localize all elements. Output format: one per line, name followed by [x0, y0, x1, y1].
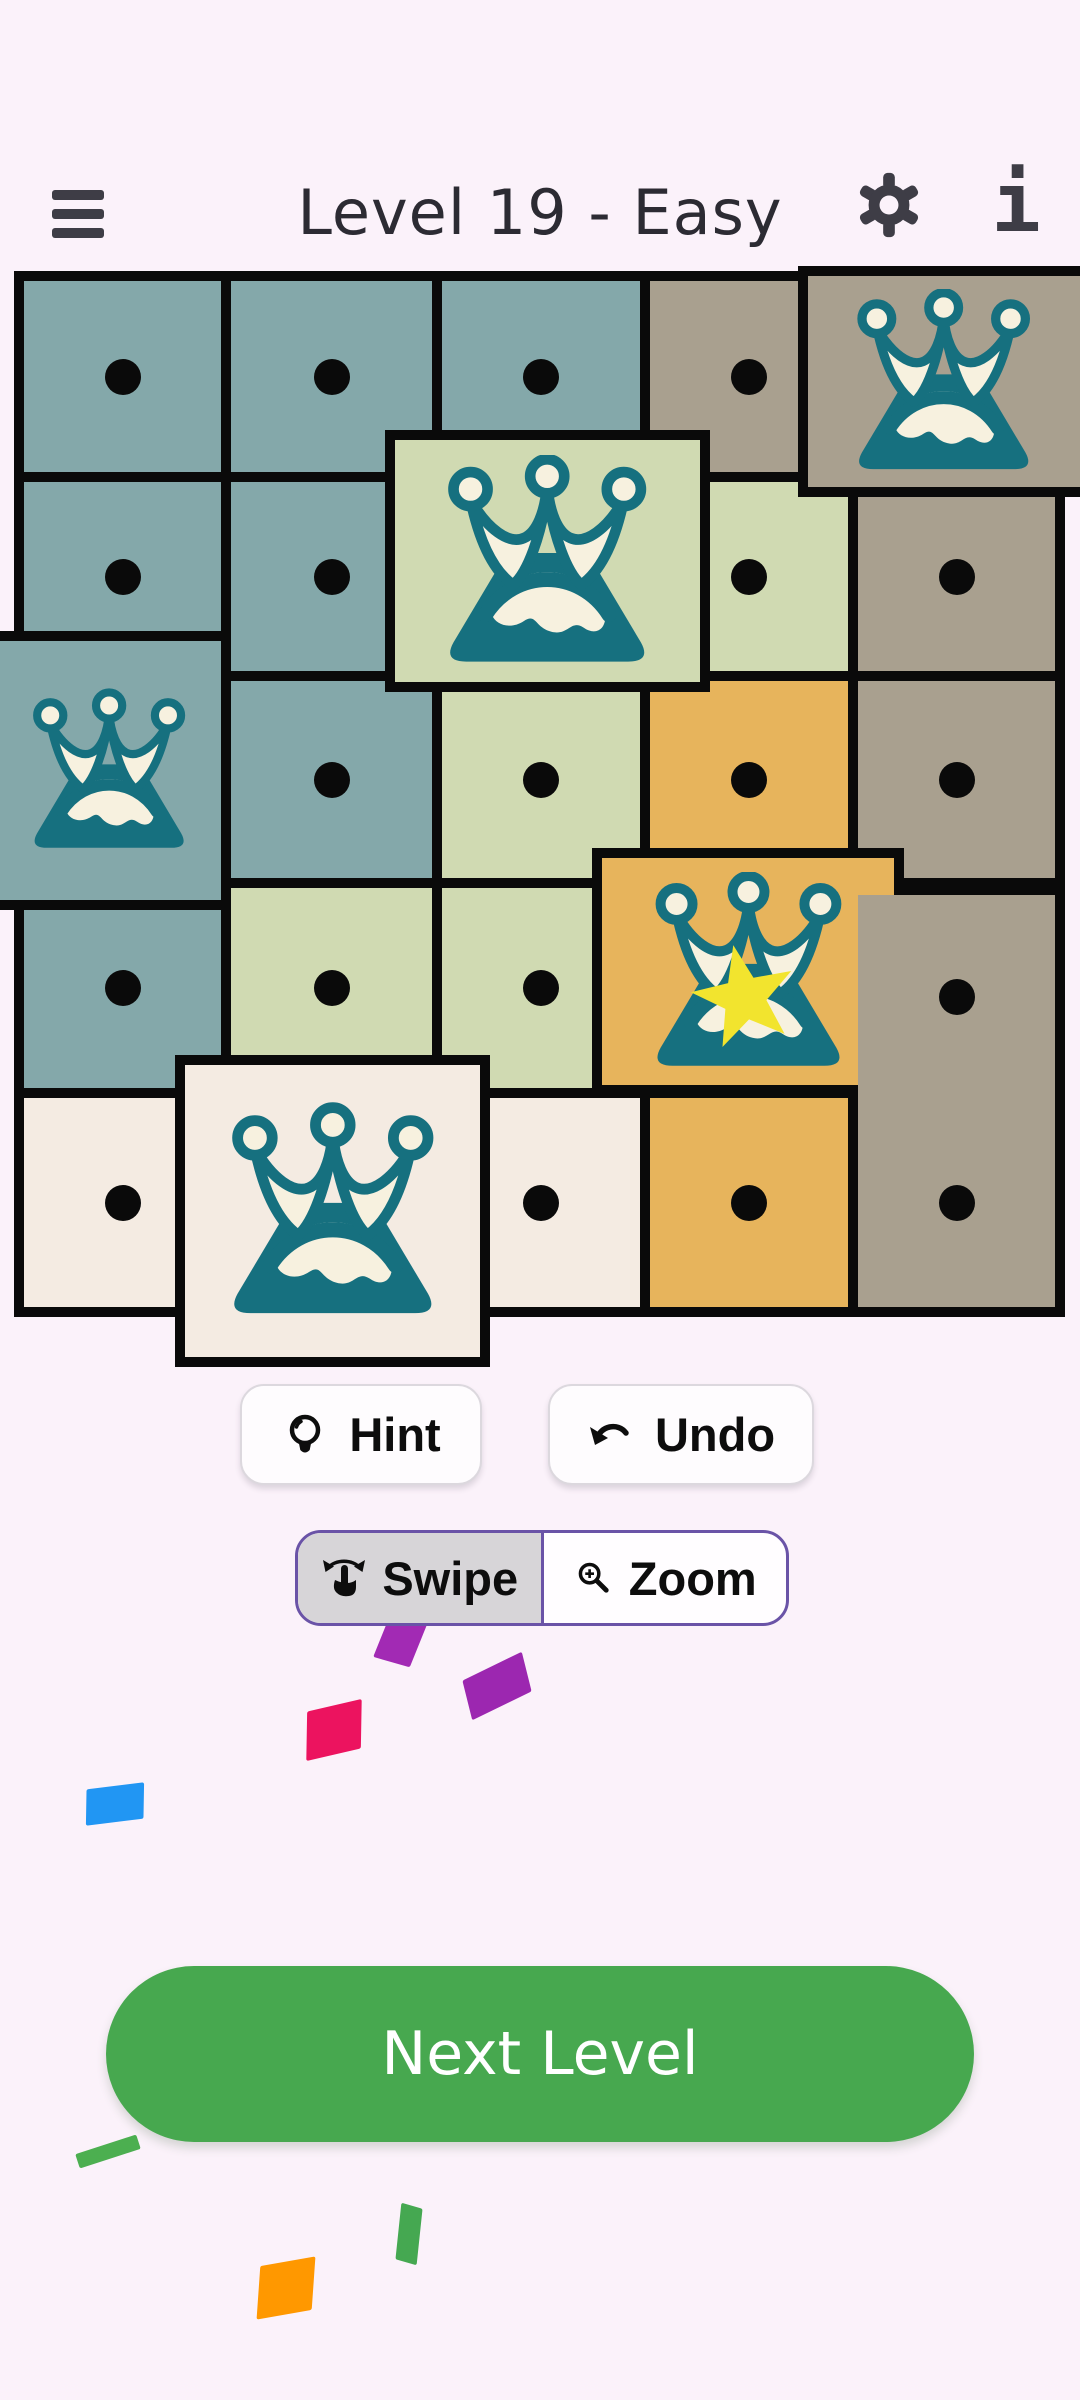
grid-cell-r2-c3[interactable] [385, 430, 710, 692]
cell-dot-marker [523, 1185, 559, 1221]
grid-cell-r3-c1[interactable] [0, 631, 231, 910]
info-button[interactable]: i [984, 164, 1048, 244]
cell-dot-marker [105, 359, 141, 395]
confetti-piece-6 [395, 2203, 422, 2266]
cell-dot-marker [939, 559, 975, 595]
cell-dot-marker [523, 762, 559, 798]
confetti-piece-5 [75, 2134, 141, 2168]
cell-dot-marker [314, 762, 350, 798]
cell-dot-marker [939, 1185, 975, 1221]
undo-label: Undo [655, 1407, 775, 1462]
swipe-mode-segment[interactable]: Swipe [298, 1533, 541, 1623]
confetti-piece-7 [257, 2256, 316, 2319]
cell-dot-marker [105, 1185, 141, 1221]
next-level-button[interactable]: Next Level [106, 1966, 974, 2142]
phone-screen: { "header": { "title": "Level 19 - Easy"… [0, 0, 1080, 2400]
crown-mountain-icon [413, 455, 681, 668]
mode-toggle: Swipe Zoom [295, 1530, 789, 1626]
cell-dot-marker [731, 762, 767, 798]
confetti-piece-2 [462, 1652, 531, 1721]
cell-dot-marker [105, 559, 141, 595]
cell-dot-marker [731, 559, 767, 595]
cell-dot-marker [314, 559, 350, 595]
grid-cell-r4-c5[interactable] [858, 895, 1055, 1098]
cell-dot-marker [105, 970, 141, 1006]
swipe-label: Swipe [382, 1551, 518, 1606]
crown-mountain-icon [203, 1083, 463, 1340]
grid-cell-r5-c5[interactable] [858, 1098, 1055, 1307]
confetti-piece-3 [306, 1699, 361, 1761]
crown-mountain-star-icon [620, 872, 877, 1072]
grid-cell-r5-c4[interactable] [650, 1098, 848, 1307]
confetti-piece-4 [86, 1782, 144, 1825]
undo-button[interactable]: Undo [548, 1384, 814, 1485]
cell-dot-marker [939, 762, 975, 798]
hint-button[interactable]: Hint [240, 1384, 482, 1485]
gear-icon [854, 170, 924, 240]
cell-dot-marker [731, 359, 767, 395]
cell-dot-marker [523, 359, 559, 395]
grid-cell-r5-c2[interactable] [175, 1055, 490, 1367]
cell-dot-marker [314, 359, 350, 395]
lightbulb-icon [281, 1411, 329, 1459]
cell-dot-marker [314, 970, 350, 1006]
grid-cell-r1-c1[interactable] [24, 281, 221, 472]
cell-dot-marker [939, 979, 975, 1015]
settings-button[interactable] [854, 170, 924, 240]
next-level-label: Next Level [381, 2019, 698, 2089]
grid-cell-r3-c2[interactable] [231, 681, 432, 878]
grid-cell-r2-c5[interactable] [858, 482, 1055, 671]
grid-cell-r1-c5[interactable] [798, 266, 1080, 497]
hint-label: Hint [349, 1407, 440, 1462]
zoom-mode-segment[interactable]: Zoom [541, 1533, 787, 1623]
crown-mountain-icon [11, 657, 207, 885]
zoom-label: Zoom [629, 1551, 757, 1606]
swipe-hand-icon [320, 1554, 368, 1602]
crown-mountain-icon [824, 289, 1063, 475]
magnifier-plus-icon [573, 1557, 615, 1599]
info-icon: i [991, 156, 1040, 251]
undo-arrow-icon [587, 1411, 635, 1459]
cell-dot-marker [731, 1185, 767, 1221]
cell-dot-marker [523, 970, 559, 1006]
